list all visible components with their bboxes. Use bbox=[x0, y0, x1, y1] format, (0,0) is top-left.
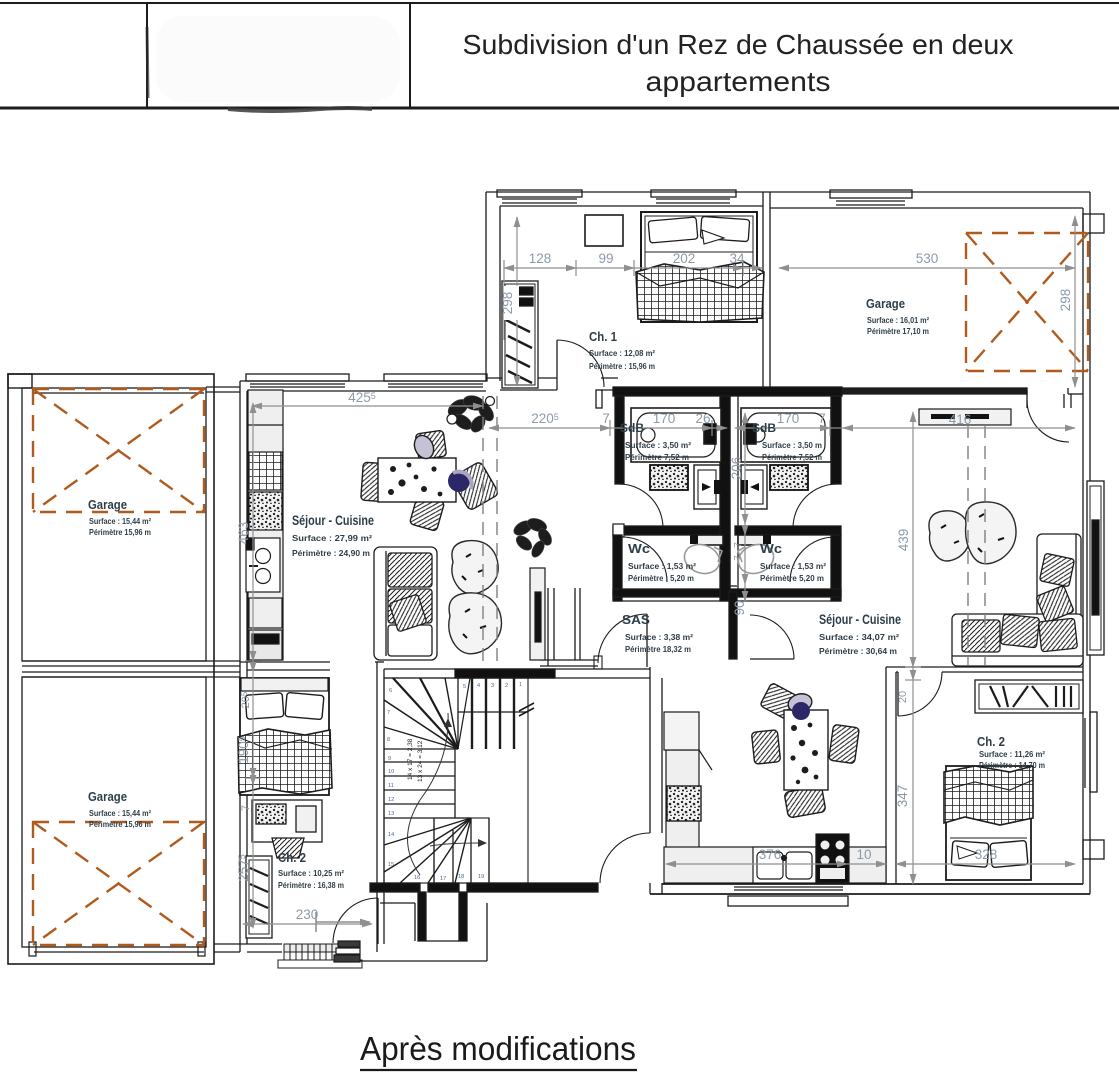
svg-text:7: 7 bbox=[733, 555, 744, 561]
svg-text:Périmètre 7,52 m: Périmètre 7,52 m bbox=[625, 453, 689, 462]
svg-text:230: 230 bbox=[296, 907, 319, 922]
svg-text:Périmètre : 16,38 m: Périmètre : 16,38 m bbox=[278, 881, 344, 890]
svg-text:Surface : 16,01 m²: Surface : 16,01 m² bbox=[867, 316, 929, 325]
svg-text:439: 439 bbox=[896, 529, 911, 552]
svg-text:appartements: appartements bbox=[646, 66, 831, 97]
svg-text:SAS: SAS bbox=[622, 612, 650, 627]
svg-text:Surface : 1,53 m²: Surface : 1,53 m² bbox=[760, 562, 826, 571]
svg-text:Surface : 3,50 m²: Surface : 3,50 m² bbox=[625, 441, 691, 450]
svg-text:5: 5 bbox=[463, 684, 466, 690]
svg-text:15: 15 bbox=[388, 862, 394, 868]
svg-text:Périmètre : 30,64 m: Périmètre : 30,64 m bbox=[819, 647, 897, 656]
svg-text:Ch. 2: Ch. 2 bbox=[278, 850, 306, 865]
svg-text:Surface : 34,07 m²: Surface : 34,07 m² bbox=[819, 633, 899, 642]
svg-text:347: 347 bbox=[895, 785, 910, 808]
svg-text:Périmètre 5,20 m: Périmètre 5,20 m bbox=[760, 574, 824, 583]
svg-text:9: 9 bbox=[388, 756, 391, 762]
svg-text:128: 128 bbox=[529, 251, 552, 266]
svg-text:202: 202 bbox=[673, 251, 696, 266]
svg-text:Séjour - Cuisine: Séjour - Cuisine bbox=[292, 512, 374, 528]
svg-text:7: 7 bbox=[733, 542, 744, 548]
svg-text:Garage: Garage bbox=[88, 789, 127, 804]
svg-text:Garage: Garage bbox=[88, 497, 127, 512]
svg-text:Séjour - Cuisine: Séjour - Cuisine bbox=[819, 611, 901, 627]
svg-text:19: 19 bbox=[478, 874, 484, 880]
svg-text:170: 170 bbox=[653, 411, 676, 426]
svg-text:26: 26 bbox=[695, 411, 710, 426]
svg-text:Ch. 2: Ch. 2 bbox=[977, 734, 1005, 749]
svg-text:Périmètre : 14,70 m: Périmètre : 14,70 m bbox=[979, 761, 1045, 770]
svg-text:298: 298 bbox=[1058, 289, 1073, 312]
svg-text:7: 7 bbox=[387, 710, 390, 716]
svg-text:Surface : 12,08 m²: Surface : 12,08 m² bbox=[589, 349, 655, 358]
svg-text:Surface : 10,25 m²: Surface : 10,25 m² bbox=[278, 869, 344, 878]
svg-text:530: 530 bbox=[916, 251, 939, 266]
svg-text:Garage: Garage bbox=[866, 296, 905, 311]
svg-text:14: 14 bbox=[388, 832, 394, 838]
svg-text:3: 3 bbox=[491, 683, 494, 689]
svg-text:Périmètre : 24,90 m: Périmètre : 24,90 m bbox=[292, 549, 370, 558]
svg-text:Périmètre 17,10 m: Périmètre 17,10 m bbox=[867, 327, 929, 336]
svg-text:Périmètre 15,96 m: Périmètre 15,96 m bbox=[89, 528, 151, 537]
svg-text:Surface : 15,44 m²: Surface : 15,44 m² bbox=[89, 517, 151, 526]
svg-text:Surface : 3,38 m²: Surface : 3,38 m² bbox=[625, 633, 693, 642]
svg-text:8: 8 bbox=[387, 737, 390, 743]
svg-text:Wc: Wc bbox=[760, 541, 782, 556]
svg-text:416: 416 bbox=[949, 412, 972, 427]
svg-text:Périmètre 15,96 m: Périmètre 15,96 m bbox=[89, 820, 151, 829]
svg-text:Surface : 1,53 m²: Surface : 1,53 m² bbox=[628, 562, 696, 571]
svg-text:Après modifications: Après modifications bbox=[360, 1030, 636, 1067]
svg-text:14 x 17 = 2,38: 14 x 17 = 2,38 bbox=[407, 738, 414, 780]
svg-text:Surface : 27,99 m²: Surface : 27,99 m² bbox=[292, 534, 372, 543]
svg-text:7: 7 bbox=[602, 411, 610, 426]
svg-text:Wc: Wc bbox=[628, 541, 650, 556]
svg-text:90: 90 bbox=[732, 600, 747, 615]
svg-text:7: 7 bbox=[818, 411, 826, 426]
svg-text:2: 2 bbox=[505, 683, 508, 689]
svg-text:12: 12 bbox=[388, 797, 394, 803]
svg-text:11: 11 bbox=[388, 783, 394, 789]
svg-text:1: 1 bbox=[519, 682, 522, 688]
svg-text:18: 18 bbox=[458, 874, 464, 880]
svg-text:Périmètre : 5,20 m: Périmètre : 5,20 m bbox=[628, 574, 694, 583]
svg-text:34: 34 bbox=[729, 251, 745, 266]
svg-text:6: 6 bbox=[389, 688, 392, 694]
svg-text:SdB: SdB bbox=[620, 421, 644, 435]
svg-text:376: 376 bbox=[759, 847, 782, 862]
svg-text:328: 328 bbox=[975, 847, 998, 862]
svg-text:Périmètre 18,32 m: Périmètre 18,32 m bbox=[625, 645, 691, 654]
svg-text:4: 4 bbox=[477, 683, 480, 689]
svg-text:170: 170 bbox=[777, 411, 800, 426]
svg-text:99: 99 bbox=[598, 251, 613, 266]
svg-text:13 x 24 = 3,12: 13 x 24 = 3,12 bbox=[417, 740, 424, 782]
svg-text:20: 20 bbox=[897, 691, 909, 703]
svg-text:10: 10 bbox=[388, 769, 394, 775]
svg-text:Périmètre : 15,96 m: Périmètre : 15,96 m bbox=[589, 362, 655, 371]
svg-text:16: 16 bbox=[414, 875, 420, 881]
svg-text:7: 7 bbox=[240, 805, 252, 811]
svg-text:463: 463 bbox=[236, 522, 251, 545]
svg-text:Périmètre 7,52 m: Périmètre 7,52 m bbox=[762, 453, 822, 462]
svg-text:298: 298 bbox=[500, 292, 515, 315]
svg-text:Surface : 15,44 m²: Surface : 15,44 m² bbox=[89, 809, 151, 818]
svg-text:Surface : 3,50 m: Surface : 3,50 m bbox=[762, 441, 822, 450]
svg-text:206: 206 bbox=[729, 457, 744, 480]
svg-text:Subdivision d'un Rez de Chauss: Subdivision d'un Rez de Chaussée en deux bbox=[463, 29, 1014, 60]
svg-text:SdB: SdB bbox=[752, 421, 776, 435]
svg-text:Surface : 11,26 m²: Surface : 11,26 m² bbox=[979, 750, 1045, 759]
svg-text:17: 17 bbox=[440, 876, 446, 882]
svg-text:10: 10 bbox=[856, 847, 871, 862]
svg-text:13: 13 bbox=[388, 811, 394, 817]
svg-text:Ch. 1: Ch. 1 bbox=[589, 329, 617, 344]
